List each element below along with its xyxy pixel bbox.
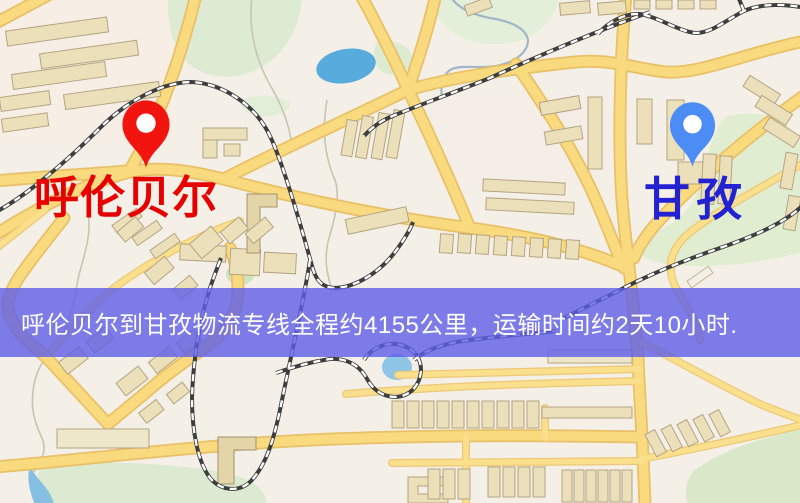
destination-pin[interactable] [666, 101, 719, 168]
origin-pin[interactable] [119, 99, 173, 169]
map-canvas[interactable] [0, 0, 800, 503]
destination-pin-icon [666, 101, 719, 168]
route-info-text: 呼伦贝尔到甘孜物流专线全程约4155公里，运输时间约2天10小时. [21, 305, 738, 340]
origin-pin-icon [119, 99, 173, 169]
origin-label: 呼伦贝尔 [34, 175, 218, 220]
route-map-image: 呼伦贝尔 甘孜 呼伦贝尔到甘孜物流专线全程约4155公里，运输时间约2天10小时… [0, 0, 800, 503]
destination-label: 甘孜 [644, 176, 748, 222]
route-info-banner: 呼伦贝尔到甘孜物流专线全程约4155公里，运输时间约2天10小时. [0, 288, 800, 357]
